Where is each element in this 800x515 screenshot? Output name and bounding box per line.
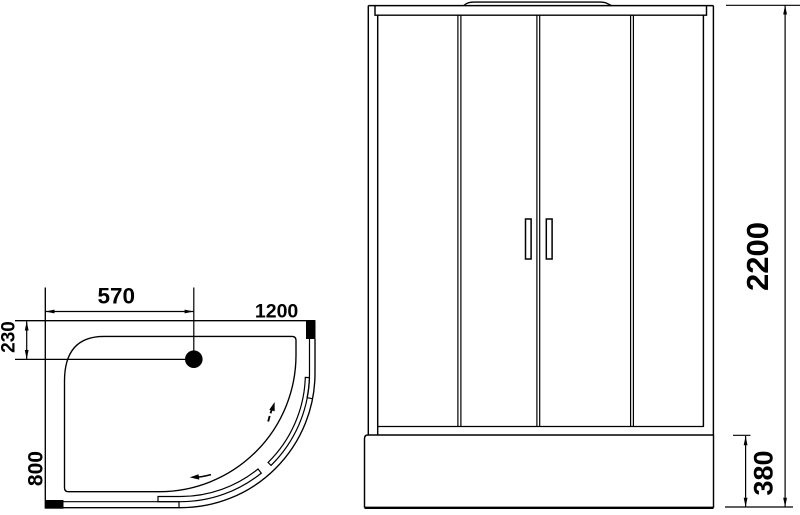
svg-text:230: 230: [0, 321, 20, 353]
svg-text:1200: 1200: [255, 301, 299, 323]
svg-text:800: 800: [25, 451, 48, 486]
svg-text:380: 380: [749, 450, 779, 495]
svg-text:2200: 2200: [740, 222, 775, 291]
svg-text:570: 570: [98, 284, 136, 309]
